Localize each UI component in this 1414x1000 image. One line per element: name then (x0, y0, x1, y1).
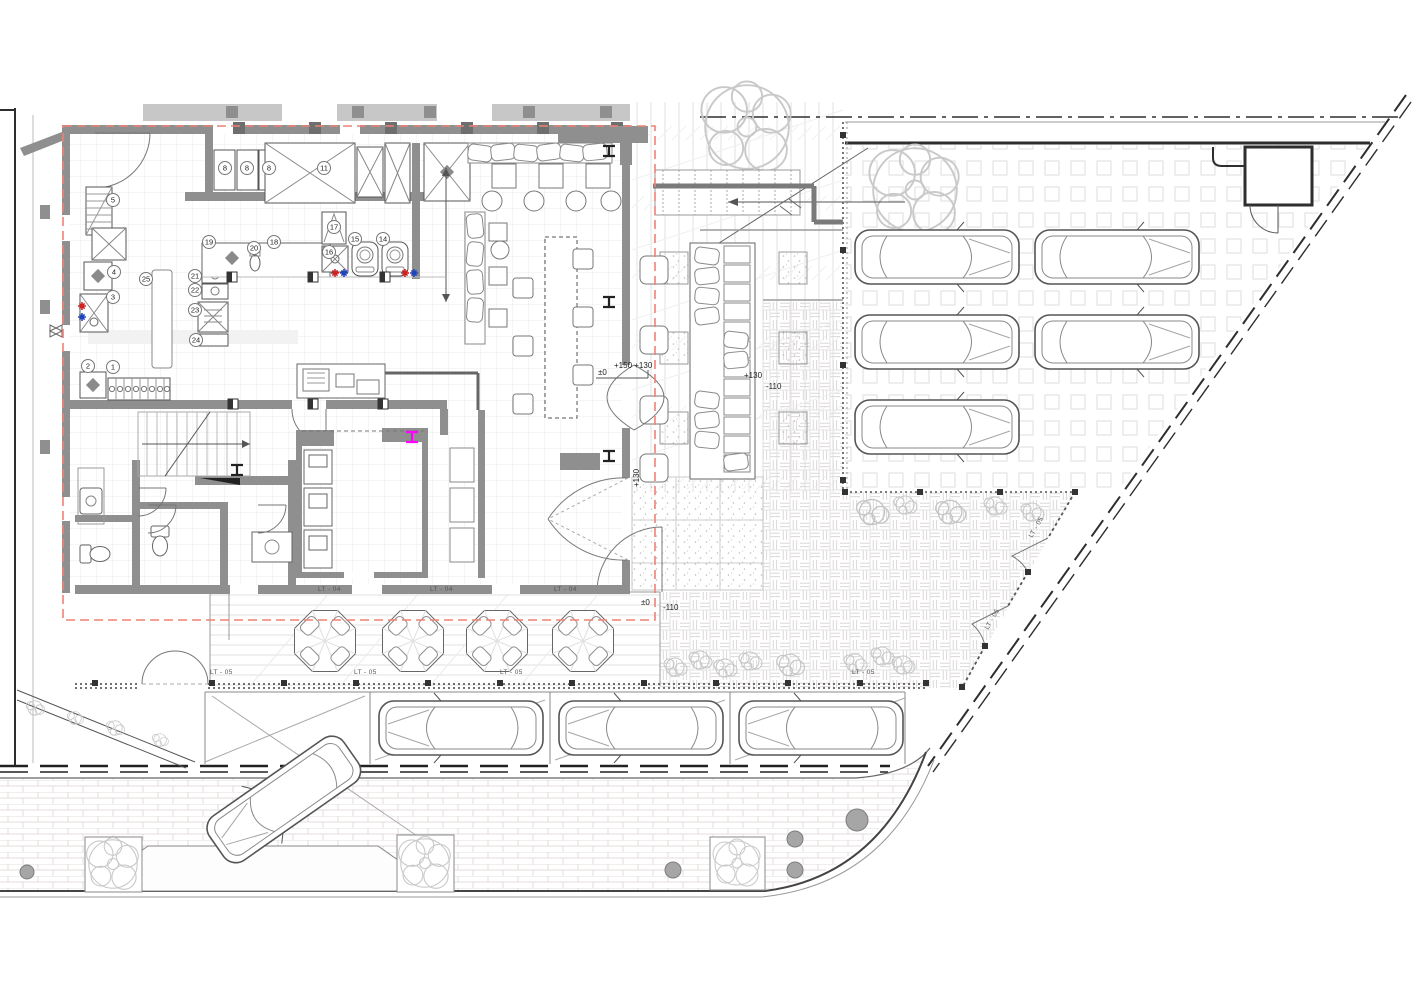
grid-column-icon (227, 272, 237, 282)
manhole (787, 831, 803, 847)
sink-bank (198, 268, 228, 346)
equipment-tag: 1 (111, 363, 115, 372)
parked-car (855, 307, 1019, 377)
floor-finish-tag: LT - 04 (318, 586, 341, 593)
terrace-stool (640, 256, 668, 284)
level-label: +130 (632, 468, 641, 487)
floor-finish-tag: LT - 05 (354, 669, 377, 676)
manhole (20, 865, 34, 879)
parked-car (855, 392, 1019, 462)
wc-toilet (80, 545, 110, 563)
parked-car (1035, 222, 1199, 292)
street-parked-car (379, 693, 543, 763)
upper-floor-band (143, 104, 630, 121)
grid-column-icon (378, 399, 388, 409)
terrace-stool (640, 326, 668, 354)
kitchen-lounge-wall (412, 143, 420, 279)
equipment-tag: 8 (267, 164, 271, 173)
parked-car (855, 222, 1019, 292)
floor-plan-canvas: 1 2 3 4 5 8 8 8 11 14 15 16 17 18 19 20 … (0, 0, 1414, 1000)
entry-apron-floor (632, 477, 763, 590)
street-parked-car (739, 693, 903, 763)
floor-plan-drawing: 1 2 3 4 5 8 8 8 11 14 15 16 17 18 19 20 … (0, 0, 1414, 1000)
grid-column-icon (308, 272, 318, 282)
prep-table (152, 270, 172, 368)
equipment-tag: 23 (191, 306, 199, 315)
equipment-tag: 20 (250, 244, 258, 253)
grid-column-icon (308, 399, 318, 409)
equipment-tag: 19 (205, 238, 213, 247)
manhole (665, 862, 681, 878)
floor-finish-tag: LT - 04 (430, 586, 453, 593)
porch-wall (205, 133, 213, 195)
wc-sink (80, 488, 102, 514)
level-label: -110 (663, 603, 679, 612)
equipment-tag: 4 (112, 268, 116, 277)
equipment-tag: 5 (111, 196, 115, 205)
grid-column-icon (380, 272, 390, 282)
equipment-tag: 11 (320, 164, 328, 173)
manhole (846, 809, 868, 831)
terrace-bench (690, 243, 755, 479)
equipment-tag: 18 (270, 238, 278, 247)
street-parked-car (559, 693, 723, 763)
level-label: ±0 (641, 598, 650, 607)
northeast-corner-wall (558, 126, 648, 143)
wc-wall (132, 460, 140, 585)
equipment-tag: 3 (111, 293, 115, 302)
pantry-wall (478, 410, 485, 578)
level-label: ±0 (598, 368, 607, 377)
floor-finish-tag: LT - 05 (852, 669, 875, 676)
level-label: -110 (766, 382, 782, 391)
level-label: +150 +130 (614, 361, 653, 370)
parked-car (1035, 307, 1199, 377)
corridor-wall (195, 476, 295, 485)
equipment-tag: 14 (379, 235, 387, 244)
floor-finish-tag: LT - 05 (500, 669, 523, 676)
equipment-tag: 16 (325, 248, 333, 257)
equipment-tag: 25 (142, 275, 150, 284)
grid-column-icon (228, 399, 238, 409)
equipment-tag: 21 (191, 272, 199, 281)
manhole (787, 862, 803, 878)
level-label: +130 (744, 371, 763, 380)
equipment-tag: 2 (86, 362, 90, 371)
equipment-tag: 22 (191, 286, 199, 295)
equipment-tag: 15 (351, 235, 359, 244)
equipment-tag: 24 (192, 336, 200, 345)
kitchen-south-wall (62, 400, 292, 409)
east-wall (622, 133, 630, 365)
equipment-tag: 8 (245, 164, 249, 173)
terrace-stool (640, 454, 668, 482)
wc-vanity (252, 532, 292, 562)
floor-finish-tag: LT - 04 (554, 586, 577, 593)
equipment-tag: 8 (223, 164, 227, 173)
equipment-tag: 17 (330, 223, 338, 232)
floor-finish-tag: LT - 05 (210, 669, 233, 676)
